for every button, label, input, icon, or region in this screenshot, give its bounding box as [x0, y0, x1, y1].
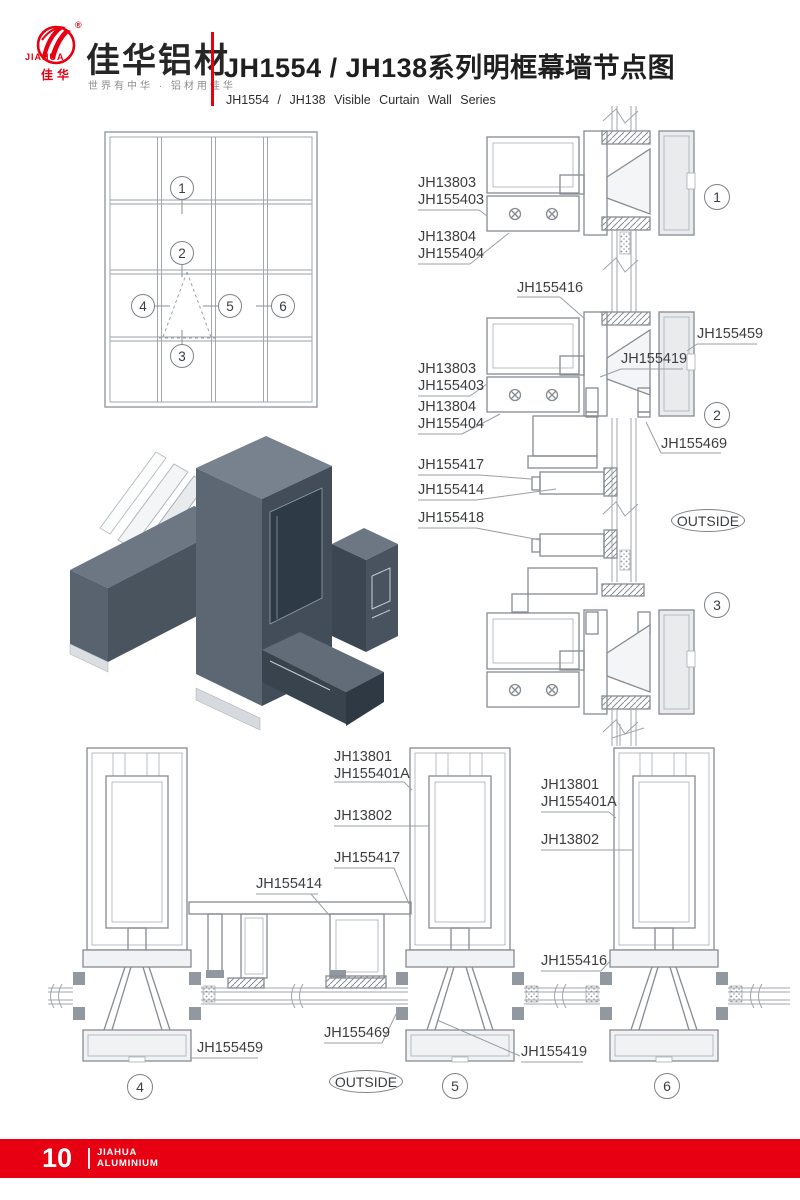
profile-3d-render	[70, 436, 398, 730]
part-label: JH13802	[334, 808, 392, 825]
footer-brand-bottom: ALUMINIUM	[97, 1159, 159, 1170]
detail-section-6	[541, 724, 742, 1062]
part-label: JH155416	[517, 280, 583, 297]
footer-brand: JIAHUA ALUMINIUM	[97, 1148, 159, 1169]
part-label: JH155403	[418, 378, 484, 395]
part-label: JH155401A	[334, 766, 410, 783]
detail-callout-6: 6	[654, 1073, 680, 1099]
footer-brand-top: JIAHUA	[97, 1148, 159, 1159]
detail-callout-5: 5	[442, 1073, 468, 1099]
part-label: JH13801	[541, 777, 599, 794]
elevation-callout-3: 3	[170, 344, 194, 368]
page-subtitle: JH1554 / JH138 Visible Curtain Wall Seri…	[226, 93, 496, 107]
outside-label: OUTSIDE	[329, 1070, 403, 1093]
part-label: JH13804	[418, 229, 476, 246]
vent-opening-triangle	[159, 272, 215, 338]
detail-callout-3: 3	[704, 592, 730, 618]
screw-symbols	[510, 209, 558, 220]
elevation-callout-4: 4	[131, 294, 155, 318]
part-label: JH13803	[418, 175, 476, 192]
part-label: JH155469	[324, 1025, 390, 1042]
part-label: JH155403	[418, 192, 484, 209]
part-label: JH13803	[418, 361, 476, 378]
part-label: JH155404	[418, 416, 484, 433]
detail-callout-4: 4	[127, 1074, 153, 1100]
part-label: JH155419	[521, 1044, 587, 1061]
outside-label: OUTSIDE	[671, 509, 745, 532]
footer-divider	[88, 1148, 90, 1169]
part-label: JH155404	[418, 246, 484, 263]
part-label: JH155401A	[541, 794, 617, 811]
header-divider	[211, 32, 214, 106]
part-label: JH155416	[541, 953, 607, 970]
part-label: JH155417	[418, 457, 484, 474]
detail-callout-2: 2	[704, 402, 730, 428]
elevation-callout-2: 2	[170, 241, 194, 265]
screw-symbols	[510, 390, 558, 401]
page-title: JH1554 / JH138系列明框幕墙节点图	[224, 46, 675, 85]
page-number: 10	[42, 1143, 72, 1174]
part-label: JH13802	[541, 832, 599, 849]
detail-section-3	[487, 610, 695, 746]
detail-section-4	[73, 748, 411, 1062]
company-name: 佳华铝材	[86, 33, 230, 82]
detail-callout-1: 1	[704, 184, 730, 210]
part-label: JH155418	[418, 510, 484, 527]
part-label: JH155469	[661, 436, 727, 453]
technical-drawings	[0, 0, 800, 1200]
part-label: JH155459	[697, 326, 763, 343]
logo-brand-text: JIAHUA	[25, 52, 65, 62]
part-label: JH155459	[197, 1040, 263, 1057]
screw-symbols	[510, 685, 558, 696]
part-label: JH155414	[418, 482, 484, 499]
header: ® JIAHUA 佳华 佳华铝材 世界有中华 · 铝材用佳华 JH1554 / …	[0, 0, 800, 115]
elevation-callout-6: 6	[271, 294, 295, 318]
elevation-callout-1: 1	[170, 176, 194, 200]
part-label: JH13801	[334, 749, 392, 766]
logo-brand-cn: 佳华	[41, 66, 73, 83]
elevation-grid-drawing	[105, 132, 317, 407]
part-label: JH155419	[621, 351, 687, 368]
part-label: JH13804	[418, 399, 476, 416]
catalog-page: ® JIAHUA 佳华 佳华铝材 世界有中华 · 铝材用佳华 JH1554 / …	[0, 0, 800, 1200]
part-label: JH155414	[256, 876, 322, 893]
elevation-callout-5: 5	[218, 294, 242, 318]
part-label: JH155417	[334, 850, 400, 867]
registered-mark: ®	[75, 20, 82, 30]
